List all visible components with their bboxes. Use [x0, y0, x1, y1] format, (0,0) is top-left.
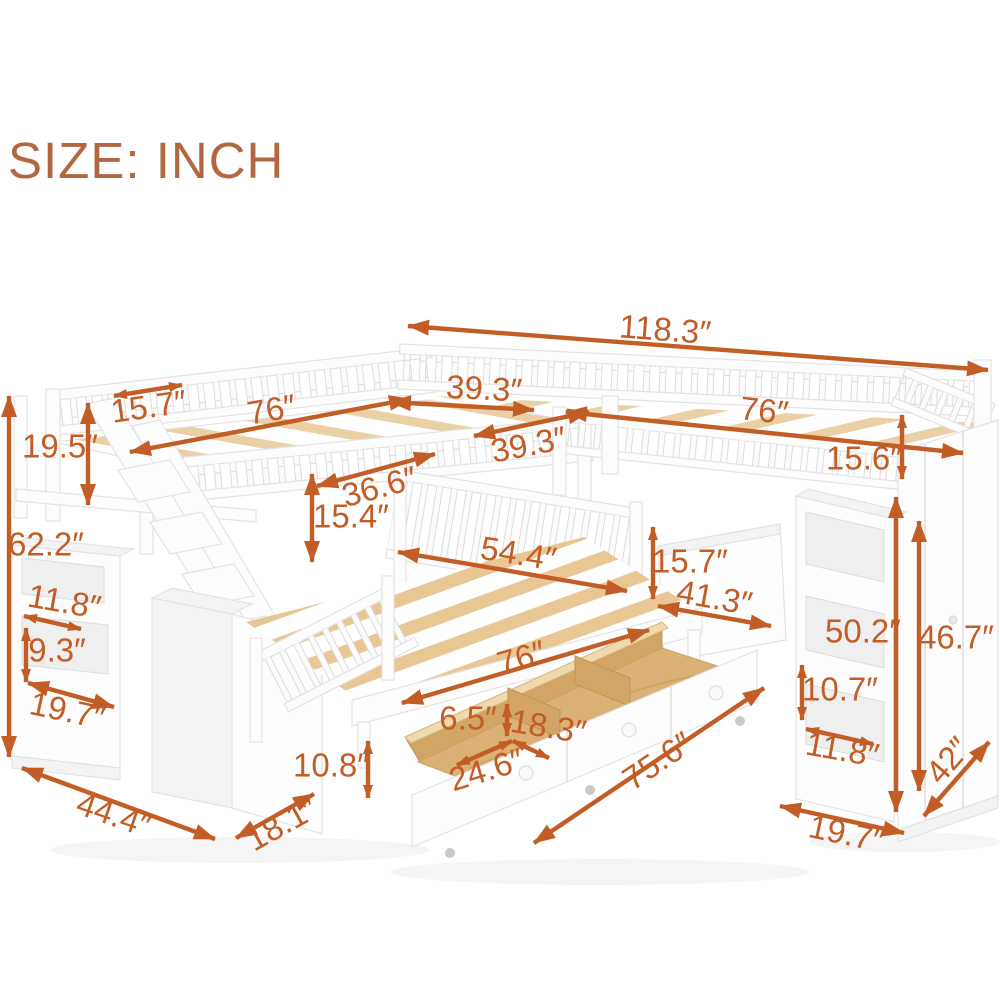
svg-text:6.5″: 6.5″ [439, 700, 497, 737]
svg-text:9.3″: 9.3″ [28, 632, 86, 669]
drawer-caster [585, 785, 595, 795]
svg-text:39.3″: 39.3″ [445, 368, 523, 409]
size-unit-title: SIZE: INCH [8, 132, 284, 189]
drawer-knob [709, 686, 723, 700]
product-dimension-diagram: SIZE: INCH 118.3″ 15.7″ 76″ 39.3″ 39.3″ … [0, 0, 1000, 1000]
svg-text:62.2″: 62.2″ [8, 526, 84, 563]
svg-text:10.8″: 10.8″ [293, 747, 369, 784]
svg-text:44.4″: 44.4″ [72, 785, 156, 845]
drawer-knob [622, 723, 636, 737]
svg-text:76″: 76″ [738, 389, 790, 431]
svg-text:15.4″: 15.4″ [313, 498, 389, 535]
drawer-caster [735, 716, 745, 726]
shelf-tower [796, 489, 906, 822]
svg-text:50.2″: 50.2″ [825, 613, 901, 650]
svg-text:118.3″: 118.3″ [618, 307, 713, 351]
svg-text:46.7″: 46.7″ [918, 619, 994, 656]
drawer-caster [445, 848, 455, 858]
svg-text:19.5″: 19.5″ [22, 428, 98, 465]
svg-text:10.7″: 10.7″ [802, 671, 878, 708]
svg-text:15.6″: 15.6″ [826, 440, 902, 477]
